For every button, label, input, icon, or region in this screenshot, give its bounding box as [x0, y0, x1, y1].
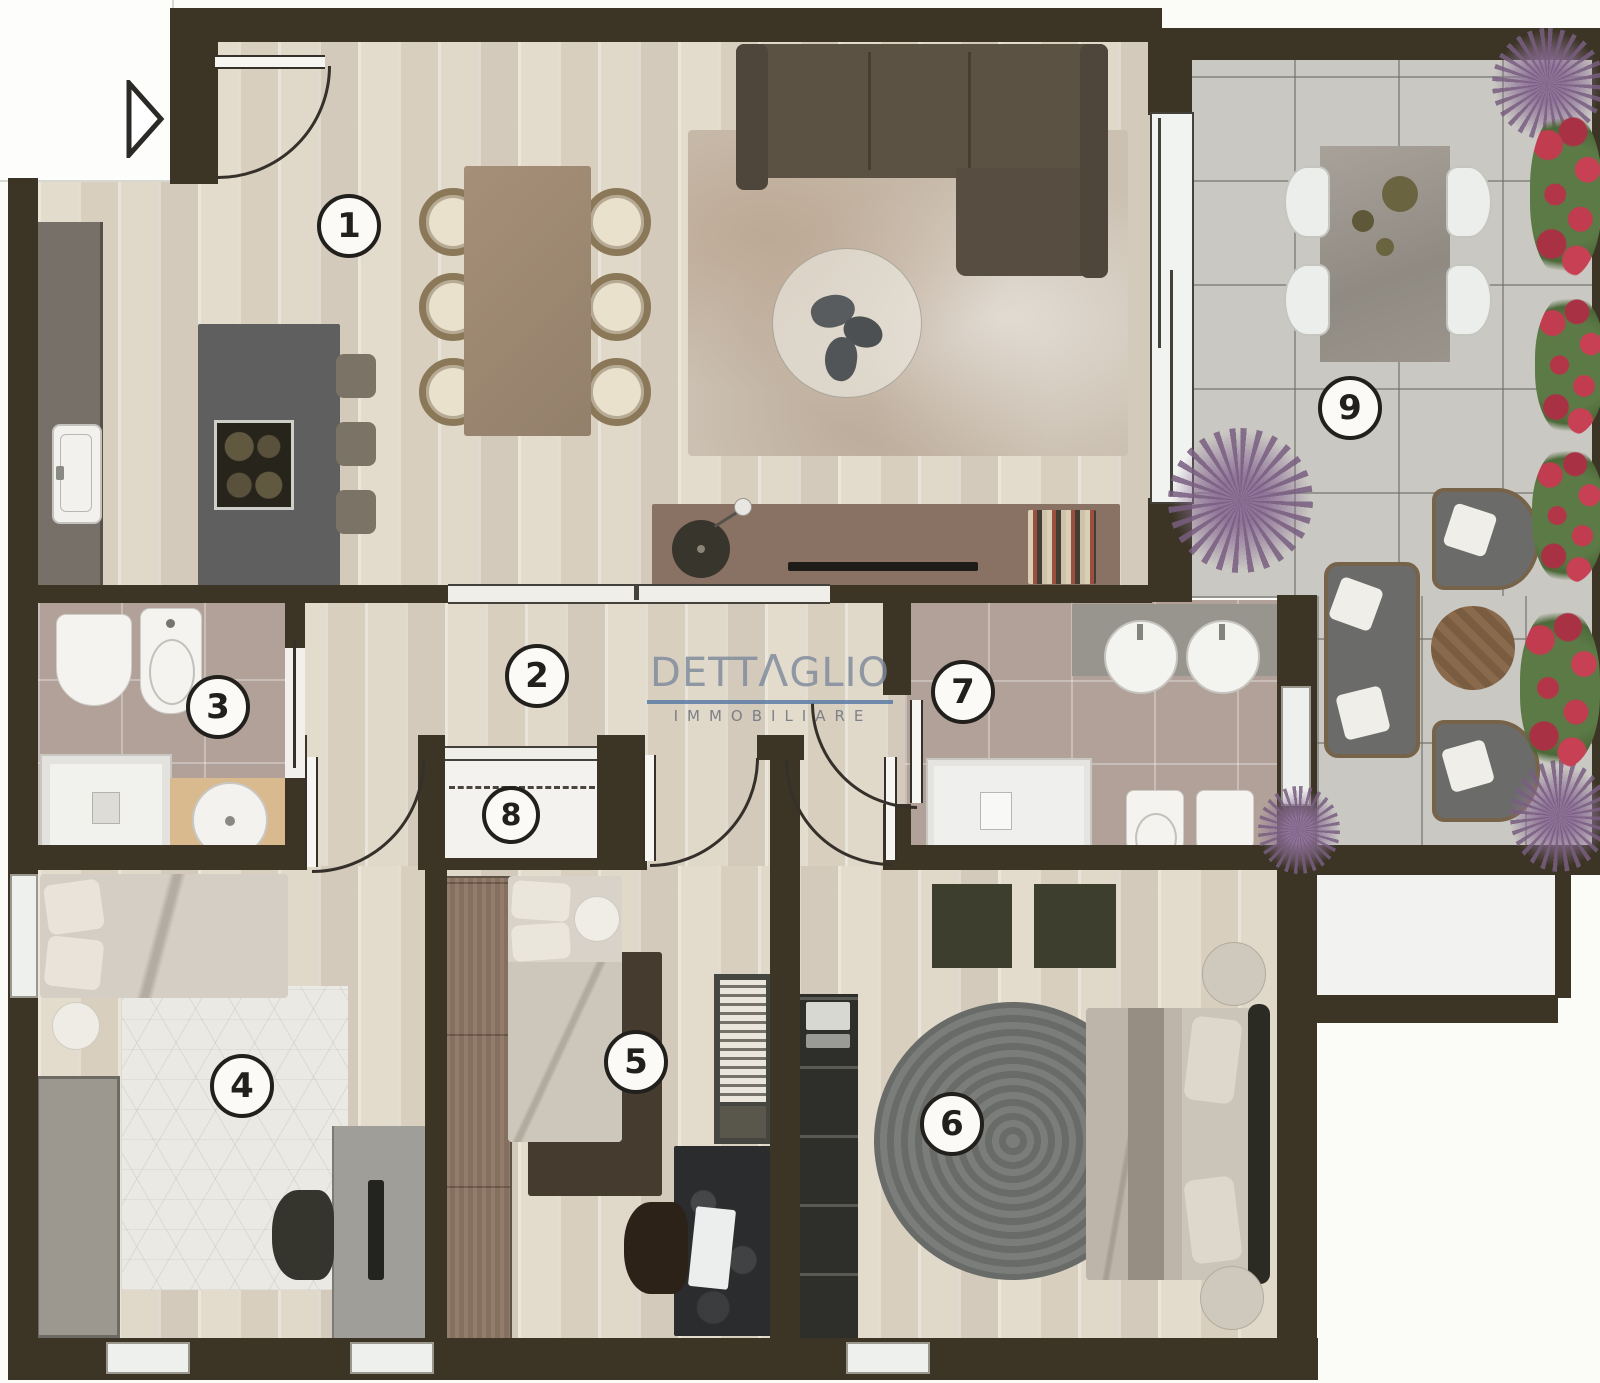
room-number-label: 2: [525, 656, 549, 696]
laptop: [688, 1206, 736, 1290]
plant-lavender: [1510, 760, 1600, 872]
outdoor-sofa: [1324, 562, 1420, 758]
record-knob: [734, 498, 752, 516]
brand-logo: DETTΛGLIO IMMOBILIARE: [636, 646, 904, 725]
dining-chair: [583, 188, 651, 256]
outdoor-armchair: [1432, 488, 1540, 590]
bed-double: [1086, 1008, 1270, 1280]
cooktop: [214, 420, 294, 510]
doorway-threshold: [448, 584, 830, 604]
planter-flowers: [1520, 608, 1600, 768]
pillow: [1183, 1015, 1243, 1104]
wall: [1280, 995, 1558, 1023]
window: [846, 1342, 930, 1374]
plant-lavender: [1168, 428, 1313, 573]
outdoor-coffee-table: [1431, 606, 1515, 690]
desk-chair: [272, 1190, 334, 1280]
outdoor-chair: [1284, 264, 1330, 336]
wardrobe: [36, 1076, 120, 1338]
wall: [8, 1338, 1318, 1380]
monitor: [368, 1180, 384, 1280]
shower-drain: [92, 792, 120, 824]
room-number-label: 5: [624, 1042, 648, 1082]
planter-flowers: [1532, 448, 1600, 583]
faucet-icon: [166, 619, 175, 628]
desk-chair: [624, 1202, 688, 1294]
kitchen-counter: [38, 222, 103, 588]
sliding-glass-door: [1150, 112, 1194, 504]
shelf-item: [806, 1002, 850, 1030]
wardrobe-wood: [444, 876, 512, 1340]
plant-lavender: [1258, 786, 1340, 874]
books: [1028, 510, 1096, 584]
bowl: [1352, 210, 1374, 232]
room-number-label: 4: [230, 1066, 254, 1106]
bed-runner: [1128, 1008, 1164, 1280]
pouffe: [1200, 1266, 1264, 1330]
pillow: [44, 935, 105, 991]
pillow: [511, 880, 572, 922]
wall: [170, 8, 218, 184]
floor-plan: 1 2 3 4 5 6 7 8 9 DETTΛGLIO IMMOBILIARE: [0, 0, 1600, 1383]
room-number-9: 9: [1318, 376, 1382, 440]
glass-panel-line: [1170, 270, 1173, 496]
bar-stool: [336, 354, 376, 398]
outdoor-pillow: [1442, 502, 1497, 557]
room-number-3: 3: [186, 675, 250, 739]
pillow: [511, 922, 571, 962]
record-center: [697, 545, 705, 553]
sofa: [736, 44, 1108, 178]
wall: [425, 858, 647, 870]
glass-panel-line: [1158, 118, 1161, 348]
bar-stool: [336, 490, 376, 534]
threshold-divider: [634, 584, 639, 600]
brand-roof-a-glyph: Λ: [758, 646, 789, 697]
wall: [215, 8, 1162, 42]
window: [350, 1342, 434, 1374]
wall: [770, 735, 800, 1345]
room-number-label: 8: [501, 798, 522, 833]
shelf-item: [806, 1034, 850, 1048]
brand-word-start: DETT: [650, 650, 758, 696]
room-number-6: 6: [920, 1092, 984, 1156]
wall: [418, 735, 445, 870]
planter-flowers: [1535, 295, 1600, 435]
pillow: [1183, 1175, 1243, 1264]
wall: [883, 845, 1277, 870]
faucet-icon: [56, 466, 64, 480]
pouffe: [1202, 942, 1266, 1006]
tv: [788, 562, 978, 571]
adjacent-unit-area: [1317, 875, 1555, 995]
room-number-label: 7: [951, 672, 975, 712]
toilet: [56, 614, 132, 706]
wall: [830, 585, 1152, 603]
outdoor-pillow: [1441, 739, 1495, 793]
kitchen-sink: [52, 424, 102, 524]
room-number-4: 4: [210, 1054, 274, 1118]
coffee-table: [772, 248, 922, 398]
brand-tagline: IMMOBILIARE: [636, 707, 904, 725]
dining-table: [464, 166, 591, 436]
shoe-cabinet: [800, 994, 858, 1342]
room-number-8: 8: [482, 786, 540, 844]
window: [10, 874, 38, 998]
sofa-seam: [868, 52, 871, 170]
planter-flowers: [1530, 112, 1600, 277]
wall: [597, 735, 645, 870]
wardrobe-module: [1034, 884, 1116, 968]
washbasin: [1104, 620, 1178, 694]
outdoor-pillow: [1328, 576, 1384, 632]
room-number-label: 3: [206, 687, 230, 727]
wall: [1555, 866, 1571, 998]
wall: [38, 585, 448, 603]
headboard: [1248, 1004, 1270, 1284]
pillow: [43, 878, 105, 935]
outdoor-dining-table: [1320, 146, 1450, 362]
bed: [40, 874, 288, 998]
bowl: [1382, 176, 1418, 212]
outdoor-pillow: [1335, 685, 1391, 741]
faucet-icon: [1219, 624, 1225, 640]
room-number-1: 1: [317, 194, 381, 258]
bookshelf: [714, 974, 772, 1144]
nightstand: [574, 896, 620, 942]
room-number-label: 9: [1338, 388, 1362, 428]
outdoor-chair: [1446, 264, 1492, 336]
outdoor-chair: [1284, 166, 1330, 238]
entrance-arrow-icon: [126, 80, 166, 158]
wall: [1148, 42, 1192, 115]
room-number-5: 5: [604, 1030, 668, 1094]
sofa-armrest: [736, 44, 768, 190]
wall: [8, 178, 38, 1345]
bar-stool: [336, 422, 376, 466]
sofa-seam: [968, 52, 971, 170]
window: [106, 1342, 190, 1374]
bowl: [1376, 238, 1394, 256]
sofa-armrest: [1080, 44, 1108, 278]
brand-wordmark: DETTΛGLIO: [647, 646, 893, 704]
dining-chair: [583, 358, 651, 426]
wardrobe-module: [932, 884, 1012, 968]
room-number-label: 1: [337, 206, 361, 246]
sink-bowl: [60, 434, 92, 512]
books: [720, 980, 766, 1102]
washbasin: [1186, 620, 1260, 694]
faucet-icon: [1137, 624, 1143, 640]
dining-chair: [583, 273, 651, 341]
brand-word-end: GLIO: [789, 650, 890, 696]
nightstand: [52, 1002, 100, 1050]
closet-threshold: [445, 746, 597, 761]
shower-drain: [980, 792, 1012, 830]
wall: [425, 868, 447, 1338]
sliding-door-panel: [293, 640, 296, 768]
faucet-icon: [225, 816, 235, 826]
room-number-label: 6: [940, 1104, 964, 1144]
record-player: [672, 520, 730, 578]
wall: [38, 845, 288, 870]
room-number-7: 7: [931, 660, 995, 724]
outdoor-chair: [1446, 166, 1492, 238]
room-number-2: 2: [505, 644, 569, 708]
shelf-item: [720, 1106, 766, 1138]
